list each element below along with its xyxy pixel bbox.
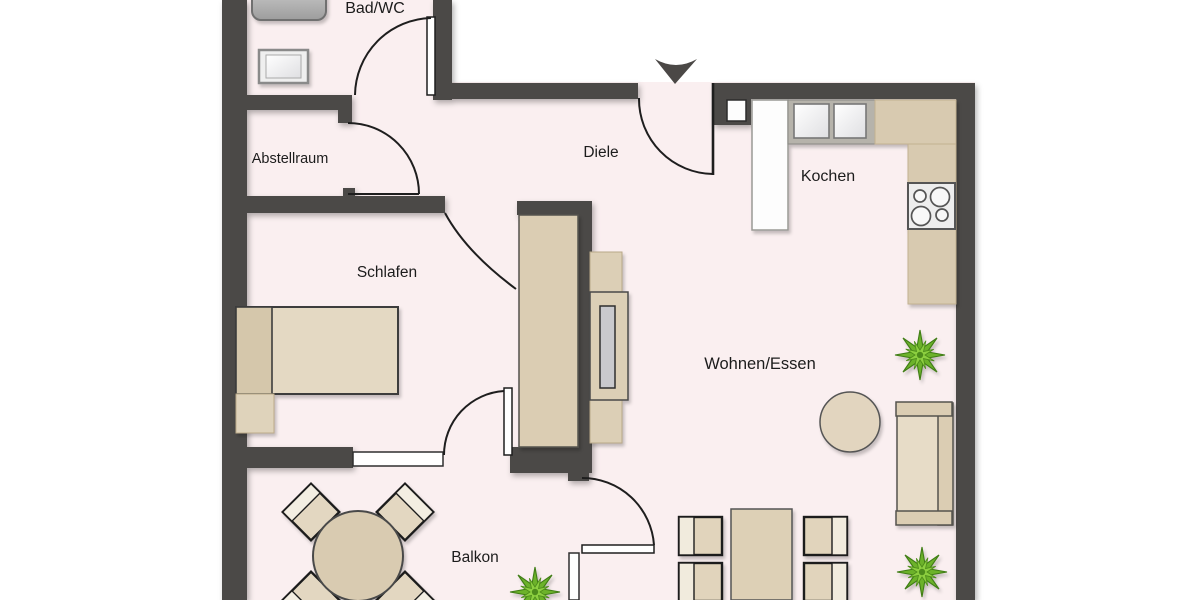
room-label-abstellraum: Abstellraum bbox=[252, 151, 329, 167]
wall-schlafen-bottom bbox=[222, 447, 353, 468]
cooktop bbox=[908, 183, 955, 229]
side-table-round bbox=[820, 392, 880, 452]
wall-right bbox=[956, 83, 975, 600]
burner-small-2 bbox=[936, 209, 948, 221]
room-label-schlafen: Schlafen bbox=[357, 264, 417, 281]
floor-plan: Bad/WC Abstellraum Diele Kochen Schlafen… bbox=[0, 0, 1200, 600]
door-leaf-badwc bbox=[427, 17, 435, 95]
bed bbox=[236, 307, 398, 394]
sofa-seat bbox=[897, 414, 939, 513]
wall-step-balcony-door bbox=[568, 473, 589, 481]
wall-left bbox=[222, 0, 247, 600]
room-label-kochen: Kochen bbox=[801, 168, 855, 185]
wall-top-right bbox=[713, 83, 975, 99]
burner-small-1 bbox=[914, 190, 926, 202]
balcony-table bbox=[313, 511, 403, 600]
burner-large-2 bbox=[912, 207, 931, 226]
wall-badwc-bottom bbox=[222, 95, 352, 110]
door-leaf-wohnen-balkon bbox=[582, 545, 654, 553]
sofa-armrest-bottom bbox=[896, 511, 952, 525]
dining-table bbox=[731, 509, 792, 600]
entrance-arrow-icon bbox=[655, 59, 697, 84]
burner-large-1 bbox=[931, 188, 950, 207]
kitchen-double-sink bbox=[788, 100, 875, 144]
wall-top-diele bbox=[433, 83, 638, 99]
wall-schlafen-top bbox=[222, 196, 445, 213]
dining-chair bbox=[804, 563, 847, 600]
window-wohnen-balkon bbox=[569, 553, 579, 600]
kitchen-tall-cabinet bbox=[752, 100, 788, 230]
door-leaf-schlafen-balkon bbox=[504, 388, 512, 455]
dining-chair bbox=[679, 563, 722, 600]
room-label-bad-wc: Bad/WC bbox=[345, 0, 405, 17]
sofa-back bbox=[938, 403, 953, 525]
wall-stub-badwc bbox=[338, 108, 352, 123]
room-label-diele: Diele bbox=[583, 144, 618, 161]
wall-below-wardrobe bbox=[510, 447, 590, 473]
wall-niche bbox=[727, 100, 746, 121]
tv-screen bbox=[600, 306, 615, 388]
bed-pillow bbox=[236, 307, 272, 394]
room-label-wohnen-essen: Wohnen/Essen bbox=[704, 355, 816, 373]
sofa-armrest-top bbox=[896, 402, 952, 416]
nightstand bbox=[236, 394, 274, 433]
dining-chair bbox=[804, 517, 847, 555]
bathtub bbox=[252, 0, 326, 20]
room-label-balkon: Balkon bbox=[451, 549, 498, 566]
dining-chair bbox=[679, 517, 722, 555]
sofa bbox=[896, 402, 953, 525]
window-schlafen-balkon bbox=[353, 452, 443, 466]
wardrobe bbox=[519, 215, 578, 447]
washbasin bbox=[259, 50, 308, 83]
